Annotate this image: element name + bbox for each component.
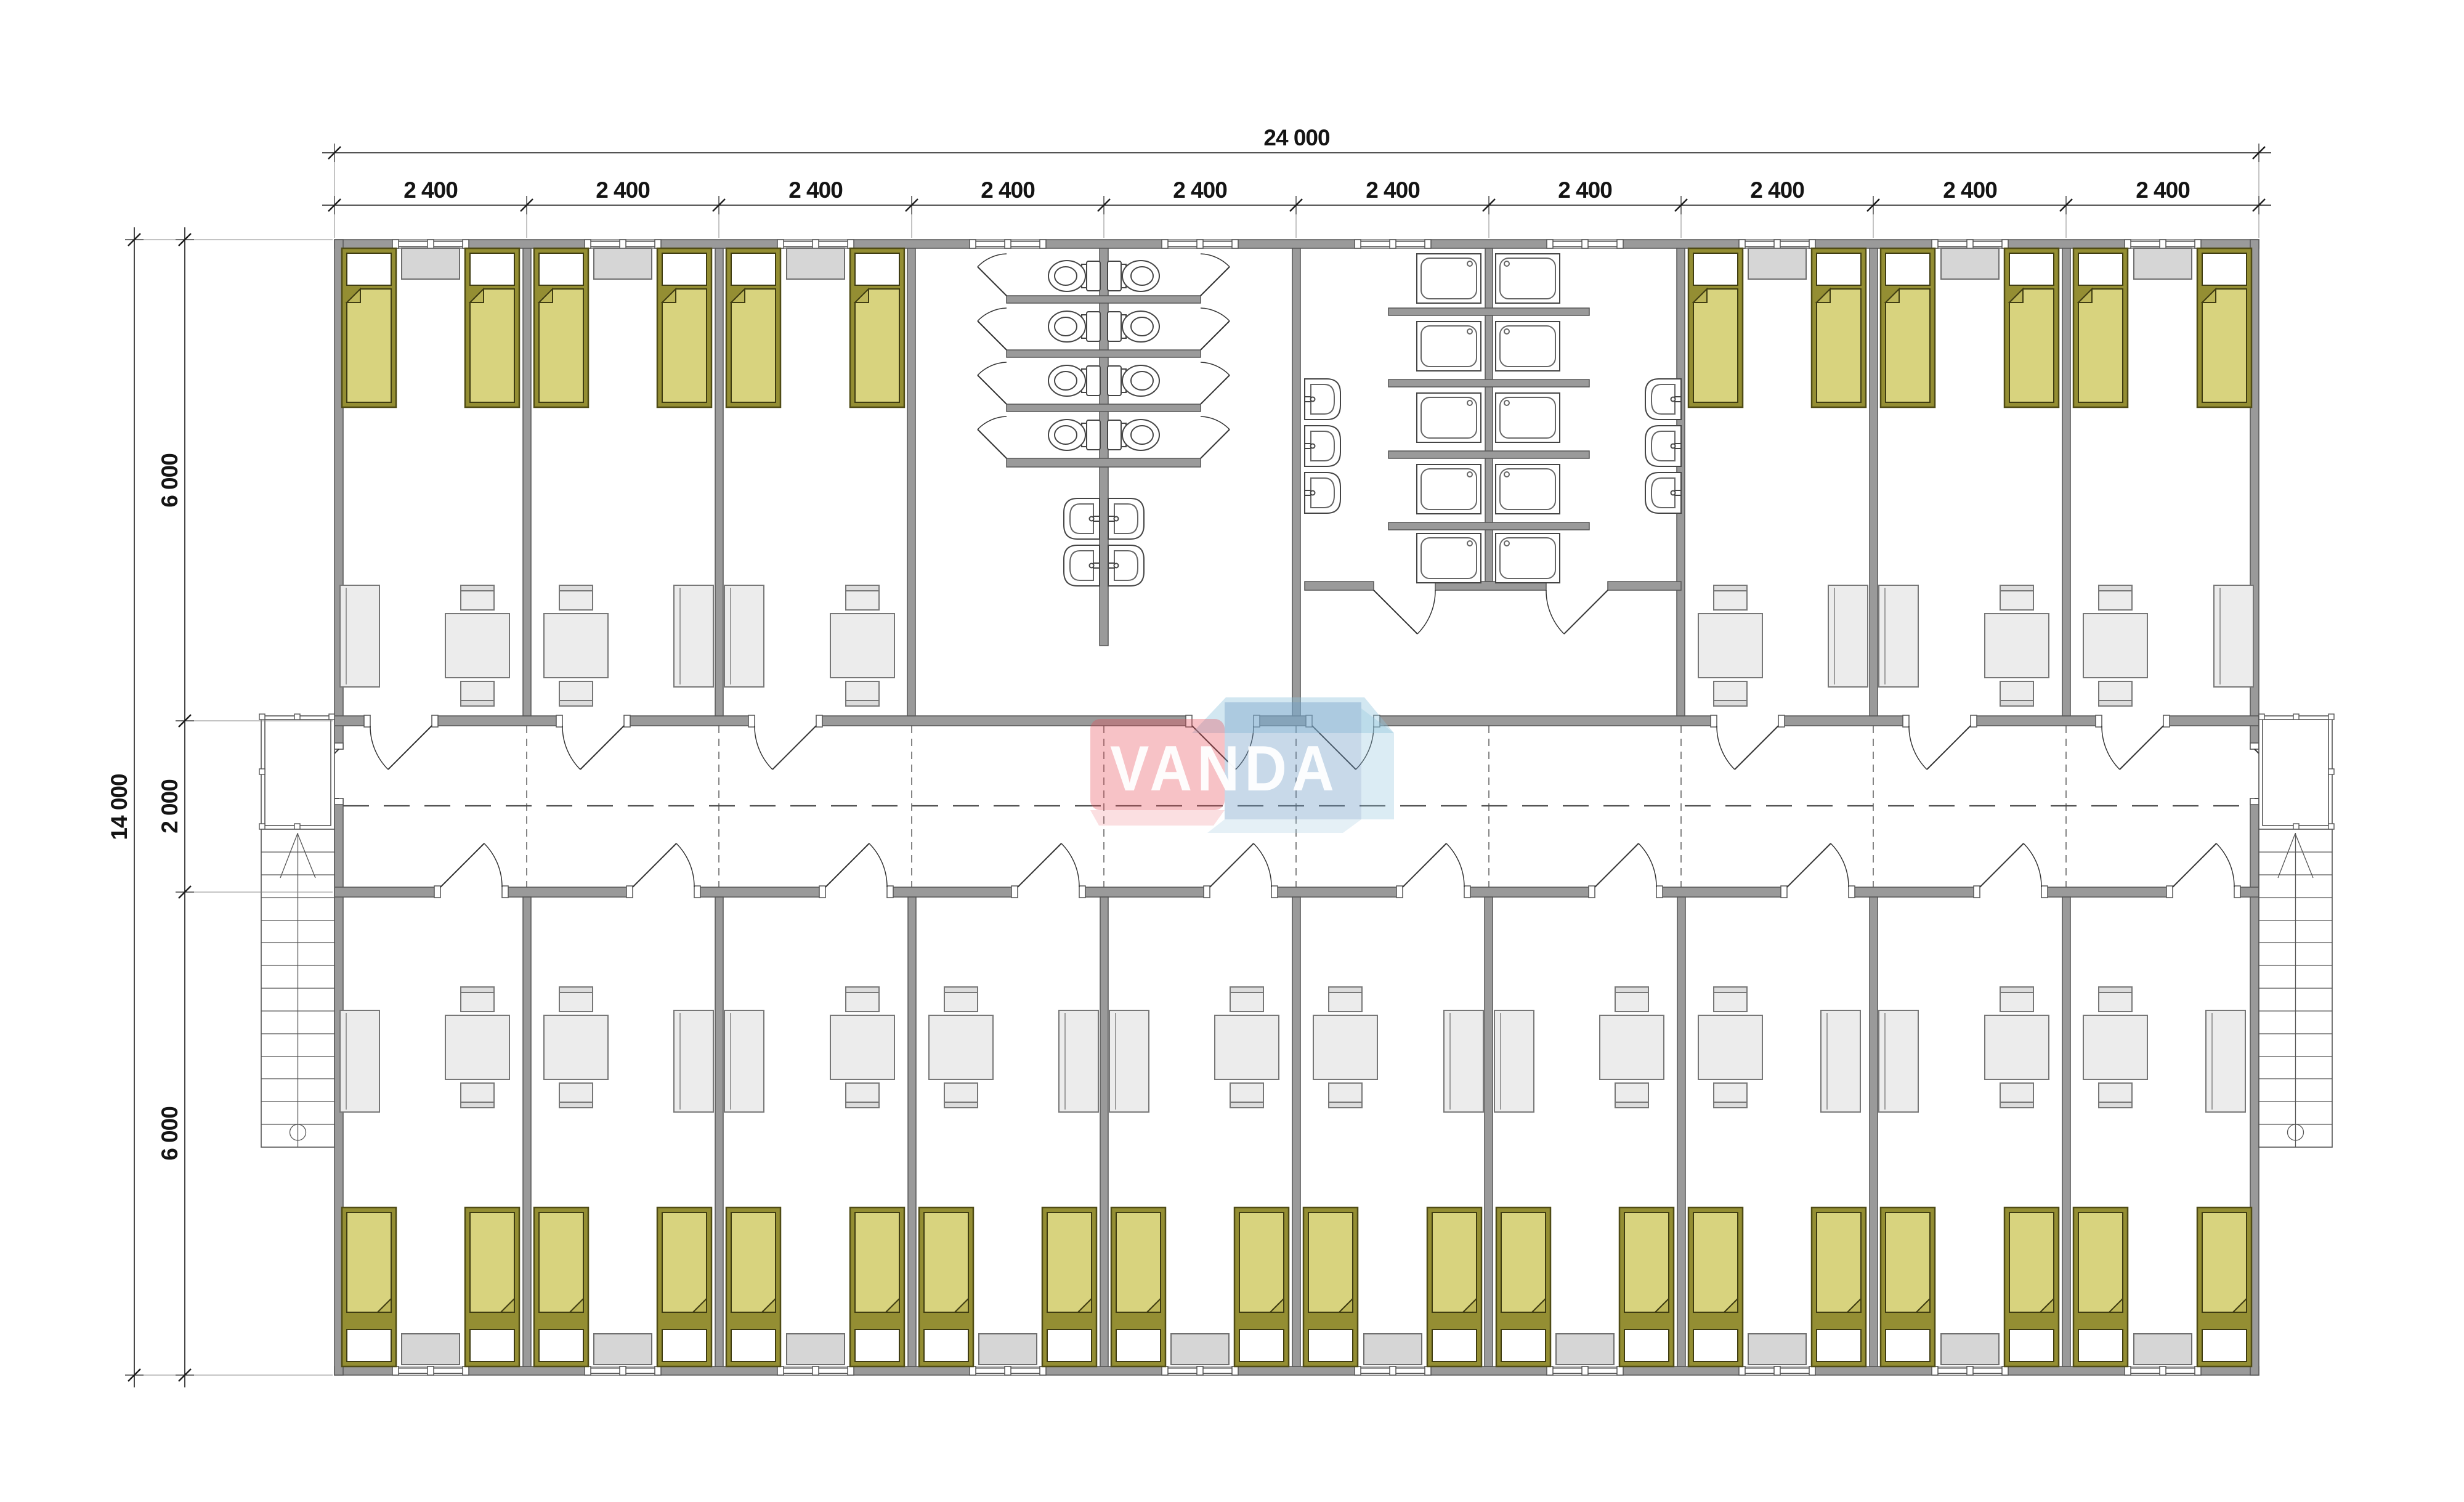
dim-segment: 2 400 bbox=[1173, 177, 1227, 203]
dim-segment: 2 400 bbox=[596, 177, 650, 203]
dim-segment: 2 400 bbox=[1366, 177, 1420, 203]
dim-height-segment: 2 000 bbox=[157, 779, 182, 834]
staircase-right bbox=[2259, 714, 2334, 1147]
dim-height-segment: 6 000 bbox=[157, 1106, 182, 1161]
watermark-text: VANDA bbox=[1110, 733, 1339, 805]
dim-segment: 2 400 bbox=[1943, 177, 1997, 203]
dim-segment: 2 400 bbox=[403, 177, 458, 203]
dim-segment: 2 400 bbox=[788, 177, 843, 203]
dim-segment: 2 400 bbox=[1750, 177, 1804, 203]
watermark-square-shadow bbox=[1090, 810, 1225, 826]
dim-segment: 2 400 bbox=[981, 177, 1035, 203]
dim-height-segment: 6 000 bbox=[157, 453, 182, 508]
drawing-sheet: 24 000 2 400 2 400 2 400 2 400 2 400 2 4… bbox=[0, 0, 2464, 1502]
floor-plan-svg: 24 000 2 400 2 400 2 400 2 400 2 400 2 4… bbox=[0, 0, 2464, 1502]
staircase-left bbox=[259, 714, 334, 1147]
watermark-cube-shadow bbox=[1207, 819, 1361, 833]
dim-segment: 2 400 bbox=[2136, 177, 2190, 203]
dim-overall-height: 14 000 bbox=[107, 774, 132, 840]
dim-segment: 2 400 bbox=[1558, 177, 1612, 203]
dim-overall-width: 24 000 bbox=[1263, 125, 1330, 150]
